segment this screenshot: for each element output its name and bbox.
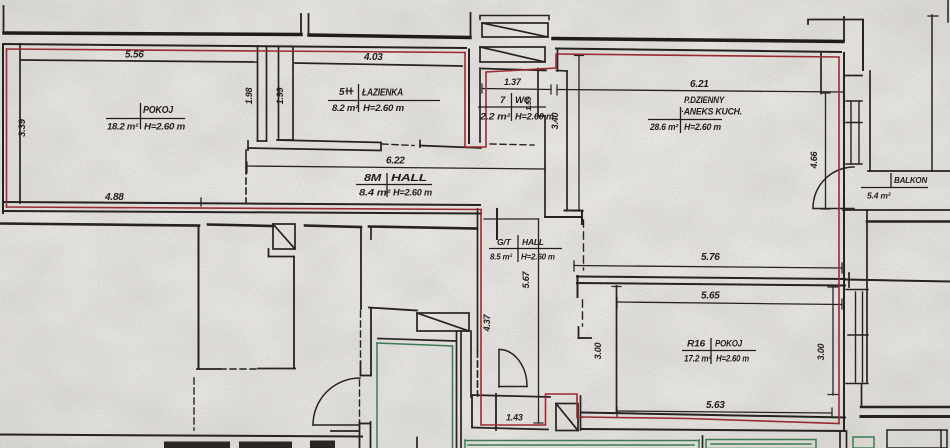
svg-text:1.99: 1.99 — [275, 87, 285, 104]
svg-text:H=2.60 m: H=2.60 m — [716, 354, 749, 364]
svg-text:8M: 8M — [364, 173, 382, 184]
svg-text:P.DZIENNY: P.DZIENNY — [684, 95, 726, 106]
svg-text:4.66: 4.66 — [809, 150, 819, 169]
svg-text:4.03: 4.03 — [363, 52, 383, 63]
svg-text:3.00: 3.00 — [816, 343, 826, 360]
svg-text:5: 5 — [339, 87, 345, 98]
svg-text:28.6 m²: 28.6 m² — [649, 122, 679, 132]
svg-text:G/T: G/T — [497, 237, 512, 247]
svg-text:18.2 m²: 18.2 m² — [107, 122, 139, 132]
svg-text:6.22: 6.22 — [386, 156, 405, 167]
svg-text:4.37: 4.37 — [482, 313, 492, 332]
svg-text:POKOJ: POKOJ — [715, 339, 743, 350]
svg-text:ŁAZIENKA: ŁAZIENKA — [361, 88, 403, 99]
svg-text:H=2.60 m: H=2.60 m — [521, 253, 555, 262]
svg-text:5.4 m²: 5.4 m² — [867, 191, 892, 201]
svg-text:3.00: 3.00 — [593, 342, 603, 359]
svg-text:2.2 m²: 2.2 m² — [479, 112, 512, 122]
svg-text:8.4 m²: 8.4 m² — [359, 188, 392, 198]
svg-text:POKOJ: POKOJ — [143, 105, 174, 116]
svg-text:8.5 m²: 8.5 m² — [490, 253, 512, 262]
svg-text:1.43: 1.43 — [506, 413, 523, 423]
svg-text:HALL: HALL — [391, 173, 427, 184]
svg-text:H=2.60 m: H=2.60 m — [363, 103, 404, 113]
svg-text:3.39: 3.39 — [17, 118, 28, 137]
svg-text:1.55: 1.55 — [524, 96, 533, 111]
svg-text:H=2.60 m: H=2.60 m — [393, 188, 432, 198]
svg-text:1.37: 1.37 — [504, 77, 522, 87]
svg-text:1.98: 1.98 — [244, 87, 254, 104]
svg-text:·ANEKS KUCH.: ·ANEKS KUCH. — [681, 107, 742, 118]
svg-text:17.2 m²: 17.2 m² — [684, 354, 712, 364]
svg-text:5.63: 5.63 — [706, 400, 725, 411]
svg-text:HALL: HALL — [522, 237, 544, 247]
svg-text:6.21: 6.21 — [690, 79, 709, 90]
svg-text:4.88: 4.88 — [104, 192, 124, 203]
svg-text:5.76: 5.76 — [701, 252, 720, 263]
svg-text:BALKON: BALKON — [894, 176, 927, 185]
svg-text:8.2 m²: 8.2 m² — [332, 103, 359, 113]
svg-text:R16: R16 — [687, 339, 706, 350]
svg-text:H=2.60 m: H=2.60 m — [515, 112, 554, 122]
svg-text:H=2.60 m: H=2.60 m — [144, 122, 185, 132]
svg-text:5.65: 5.65 — [701, 291, 720, 302]
svg-text:3.40: 3.40 — [550, 112, 560, 129]
svg-text:H=2.60 m: H=2.60 m — [684, 122, 721, 132]
svg-text:5.67: 5.67 — [521, 270, 531, 288]
svg-text:5.56: 5.56 — [125, 50, 144, 61]
